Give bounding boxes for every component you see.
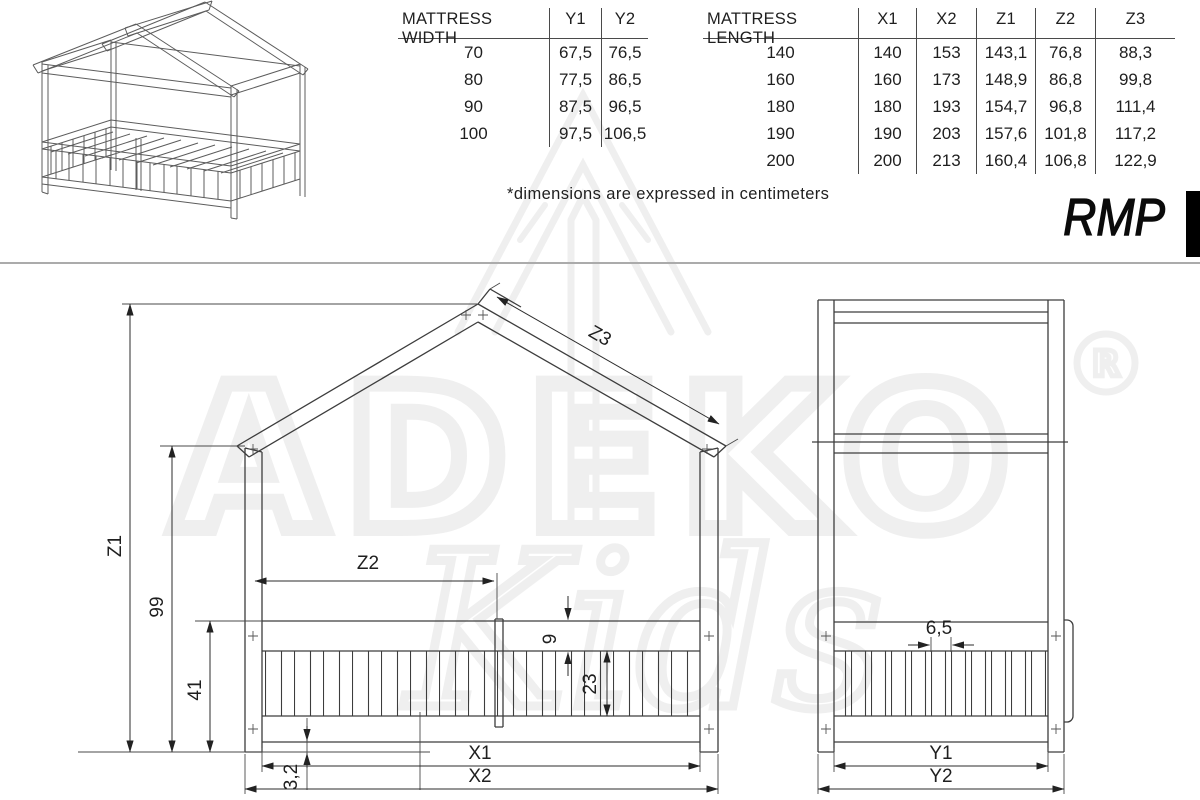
table-cell: 180 bbox=[858, 93, 916, 120]
dimension-label-z3: Z3 bbox=[585, 322, 615, 351]
table-cell: 101,8 bbox=[1035, 120, 1095, 147]
column-header: X2 bbox=[916, 8, 976, 39]
table-cell: 200 bbox=[703, 147, 858, 174]
table-cell: 90 bbox=[398, 93, 549, 120]
column-header: Z1 bbox=[976, 8, 1035, 39]
table-cell: 148,9 bbox=[976, 66, 1035, 93]
table-cell: 154,7 bbox=[976, 93, 1035, 120]
table-cell: 86,5 bbox=[601, 66, 648, 93]
table-cell: 96,5 bbox=[601, 93, 648, 120]
spec-sheet: ADEKO R Kids bbox=[0, 0, 1200, 800]
table-cell: 70 bbox=[398, 39, 549, 66]
table-cell: 160,4 bbox=[976, 147, 1035, 174]
technical-views-drawing: Z1 99 41 Z2 Z3 9 23 3,2 X1 X2 bbox=[0, 263, 1200, 800]
table-cell: 140 bbox=[703, 39, 858, 66]
table-cell: 190 bbox=[703, 120, 858, 147]
table-cell: 160 bbox=[858, 66, 916, 93]
table-cell: 117,2 bbox=[1095, 120, 1175, 147]
front-view: Z1 99 41 Z2 Z3 9 23 3,2 X1 X2 bbox=[78, 283, 738, 794]
table-cell: 99,8 bbox=[1095, 66, 1175, 93]
dimension-label-6-5: 6,5 bbox=[926, 618, 952, 639]
table-cell: 157,6 bbox=[976, 120, 1035, 147]
table-cell: 203 bbox=[916, 120, 976, 147]
dimension-label-41: 41 bbox=[185, 679, 206, 700]
column-header: Z2 bbox=[1035, 8, 1095, 39]
column-header: X1 bbox=[858, 8, 916, 39]
table-cell: 77,5 bbox=[549, 66, 601, 93]
isometric-bed-drawing bbox=[0, 0, 345, 245]
table-cell: 67,5 bbox=[549, 39, 601, 66]
table-cell: 86,8 bbox=[1035, 66, 1095, 93]
table-cell: 143,1 bbox=[976, 39, 1035, 66]
table-cell: 193 bbox=[916, 93, 976, 120]
column-header: MATTRESS LENGTH bbox=[703, 8, 858, 39]
table-cell: 180 bbox=[703, 93, 858, 120]
dimension-label-9: 9 bbox=[540, 634, 561, 645]
table-cell: 106,5 bbox=[601, 120, 648, 147]
dimension-label-3-2: 3,2 bbox=[281, 764, 302, 790]
column-header: Y1 bbox=[549, 8, 601, 39]
table-cell: 80 bbox=[398, 66, 549, 93]
table-cell: 100 bbox=[398, 120, 549, 147]
table-cell: 106,8 bbox=[1035, 147, 1095, 174]
table-cell: 76,5 bbox=[601, 39, 648, 66]
dimension-label-x2: X2 bbox=[468, 766, 491, 787]
table-cell: 76,8 bbox=[1035, 39, 1095, 66]
table-cell: 96,8 bbox=[1035, 93, 1095, 120]
table-cell: 88,3 bbox=[1095, 39, 1175, 66]
table-cell: 200 bbox=[858, 147, 916, 174]
column-header: Y2 bbox=[601, 8, 648, 39]
side-view: 6,5 Y1 Y2 bbox=[812, 300, 1073, 794]
table-cell: 190 bbox=[858, 120, 916, 147]
table-cell: 160 bbox=[703, 66, 858, 93]
dimension-label-y2: Y2 bbox=[929, 766, 952, 787]
mattress-width-table: MATTRESS WIDTH Y1 Y2 70 67,5 76,5 80 77,… bbox=[398, 8, 648, 147]
table-cell: 140 bbox=[858, 39, 916, 66]
dimension-label-x1: X1 bbox=[468, 743, 491, 764]
dimension-label-23: 23 bbox=[580, 673, 601, 694]
model-label: RMP bbox=[1020, 190, 1165, 247]
table-cell: 87,5 bbox=[549, 93, 601, 120]
dimension-label-99: 99 bbox=[147, 596, 168, 617]
units-note: *dimensions are expressed in centimeters bbox=[507, 185, 829, 204]
column-header: MATTRESS WIDTH bbox=[398, 8, 549, 39]
dimension-label-y1: Y1 bbox=[929, 743, 952, 764]
table-cell: 122,9 bbox=[1095, 147, 1175, 174]
table-cell: 97,5 bbox=[549, 120, 601, 147]
table-cell: 111,4 bbox=[1095, 93, 1175, 120]
mattress-length-table: MATTRESS LENGTH X1 X2 Z1 Z2 Z3 140 140 1… bbox=[703, 8, 1175, 174]
dimension-label-z1: Z1 bbox=[105, 535, 126, 557]
table-cell: 153 bbox=[916, 39, 976, 66]
table-cell: 173 bbox=[916, 66, 976, 93]
table-cell: 213 bbox=[916, 147, 976, 174]
screen-edge-artifact bbox=[1186, 191, 1200, 257]
dimension-label-z2: Z2 bbox=[357, 553, 379, 574]
column-header: Z3 bbox=[1095, 8, 1175, 39]
